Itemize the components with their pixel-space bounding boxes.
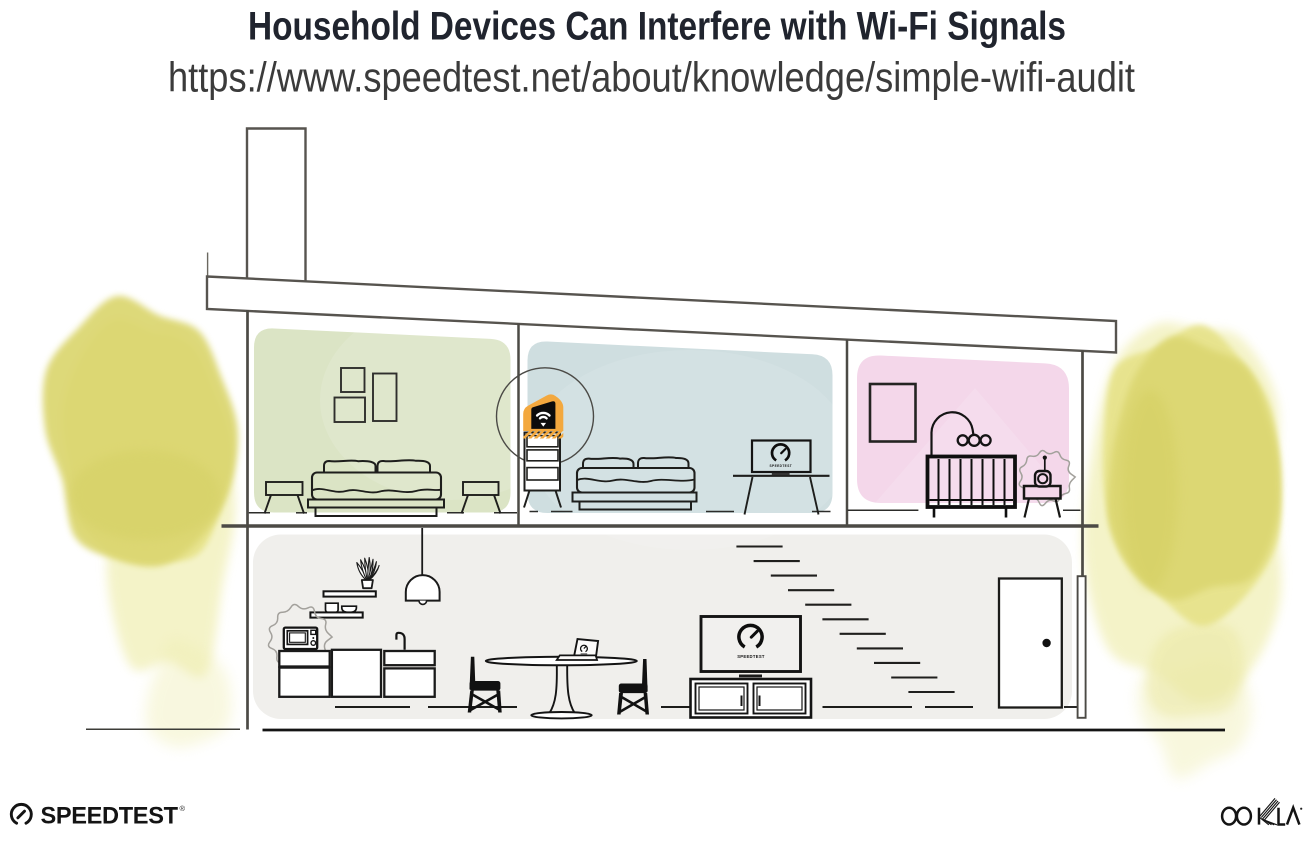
svg-text:https://www.speedtest.net/abou: https://www.speedtest.net/about/knowledg… [168, 54, 1135, 101]
svg-text:SPEEDTEST: SPEEDTEST [41, 803, 179, 829]
svg-text:SPEEDTEST: SPEEDTEST [770, 464, 793, 468]
svg-text:Household Devices Can Interfer: Household Devices Can Interfere with Wi-… [248, 5, 1066, 49]
svg-text:®: ® [180, 804, 186, 813]
svg-text:SPEEDTEST: SPEEDTEST [737, 654, 765, 659]
